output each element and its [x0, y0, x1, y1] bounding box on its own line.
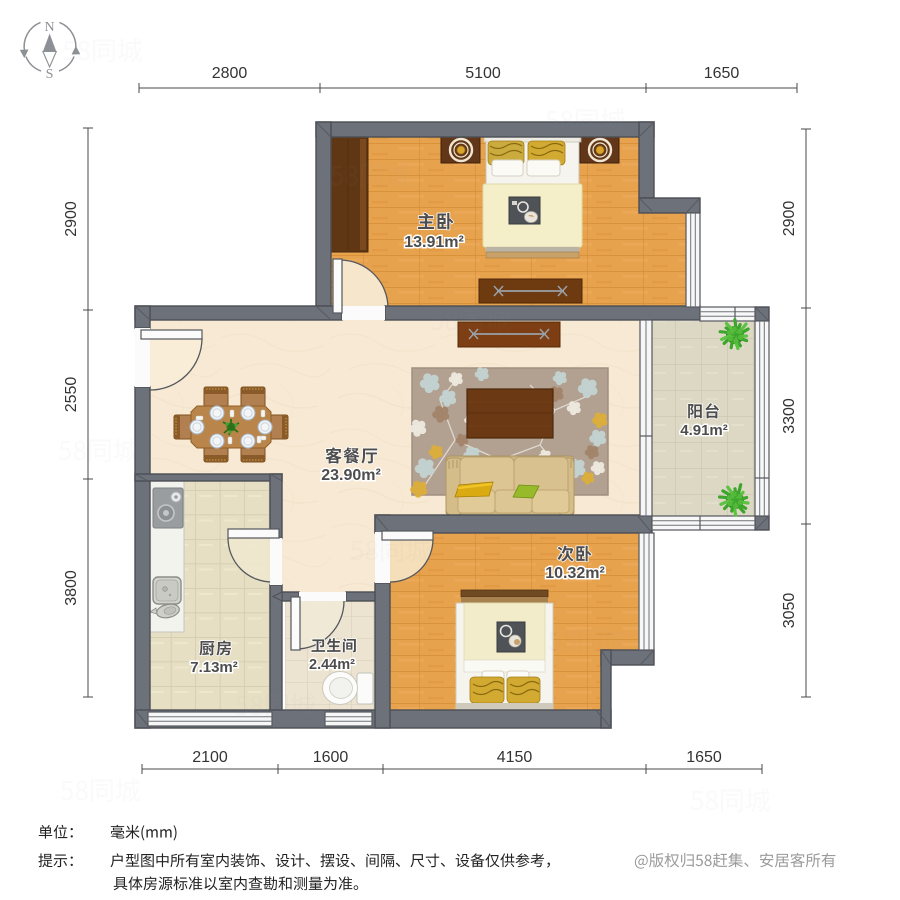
svg-text:3300: 3300	[781, 398, 798, 434]
svg-text:2900: 2900	[63, 201, 80, 237]
svg-text:3800: 3800	[63, 570, 80, 606]
svg-text:N: N	[44, 20, 54, 35]
svg-text:S: S	[46, 67, 54, 82]
svg-text:4.91m²: 4.91m²	[680, 422, 728, 439]
svg-text:7.13m²: 7.13m²	[190, 659, 238, 676]
svg-text:1650: 1650	[704, 65, 740, 82]
svg-text:3050: 3050	[781, 593, 798, 629]
svg-text:1600: 1600	[313, 749, 349, 766]
svg-text:5100: 5100	[465, 65, 501, 82]
svg-text:10.32m²: 10.32m²	[545, 565, 605, 582]
svg-text:13.91m²: 13.91m²	[404, 234, 464, 251]
svg-text:2100: 2100	[192, 749, 228, 766]
svg-text:2800: 2800	[212, 65, 248, 82]
svg-text:1650: 1650	[686, 749, 722, 766]
svg-text:2.44m²: 2.44m²	[309, 657, 355, 673]
svg-text:4150: 4150	[497, 749, 533, 766]
svg-text:2550: 2550	[63, 377, 80, 413]
svg-text:23.90m²: 23.90m²	[321, 467, 381, 484]
svg-text:2900: 2900	[781, 201, 798, 237]
